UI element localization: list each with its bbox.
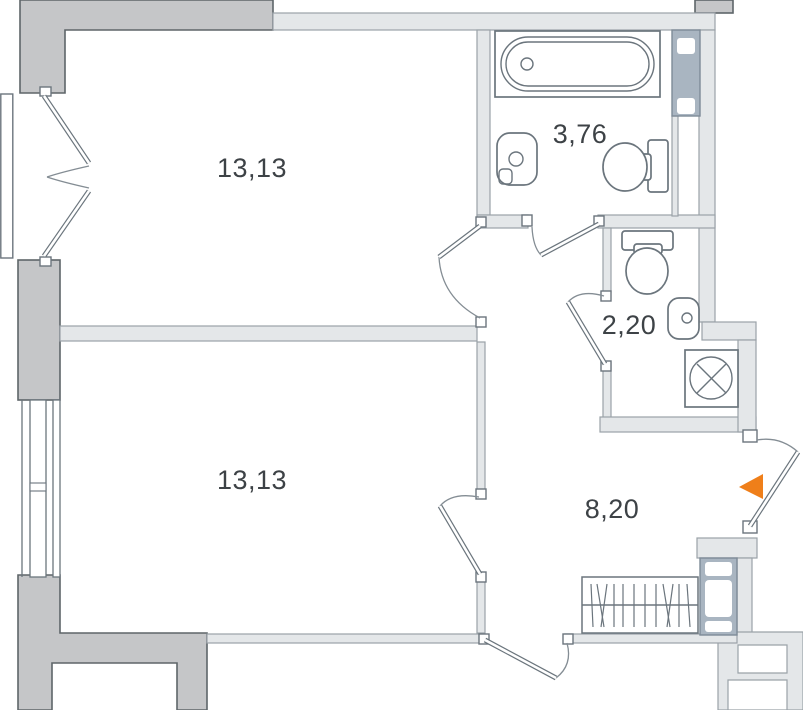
- wall-room1-bath: [477, 30, 490, 215]
- wc-toilet-icon: [622, 231, 673, 294]
- wall-right-upper: [699, 30, 715, 322]
- room1-door-icon: [439, 217, 486, 327]
- room2-area-label: 13,13: [217, 465, 287, 495]
- wc-sink-icon: [668, 298, 699, 339]
- room2-door-icon: [440, 489, 486, 582]
- wall-entry-lower: [697, 538, 757, 558]
- wall-right-lower: [737, 558, 752, 634]
- balcony-slab: [1, 94, 13, 258]
- wall-bath-bottom-right: [598, 215, 715, 228]
- wall-wc-bottom: [600, 417, 756, 432]
- bathroom-door-icon: [522, 215, 604, 255]
- wall-room2-hall-lower: [477, 575, 485, 633]
- room1-area-label: 13,13: [217, 153, 287, 183]
- wall-bath-inner-thin: [672, 116, 678, 216]
- entrance-marker-icon: [739, 474, 763, 499]
- wc-area-label: 2,20: [602, 310, 657, 340]
- wall-bottom-left-structure: [18, 575, 207, 710]
- wall-wc-left-top: [603, 228, 611, 292]
- bathroom-sink-icon: [497, 133, 537, 185]
- wall-top-left: [20, 0, 273, 93]
- wall-entry-upper: [738, 340, 756, 432]
- bathroom-area-label: 3,76: [553, 119, 608, 149]
- wall-top-band: [273, 13, 715, 30]
- wall-left-middle: [18, 260, 60, 400]
- vent-shaft-icon: [700, 558, 737, 635]
- wall-between-rooms: [60, 326, 477, 341]
- hall-bottom-door-icon: [479, 634, 573, 678]
- hallway-area-label: 8,20: [585, 494, 640, 524]
- floorplan-svg: 13,13 13,13 3,76 2,20 8,20: [0, 0, 803, 710]
- bathroom-toilet-icon: [603, 140, 668, 192]
- wardrobe-icon: [582, 577, 698, 633]
- window-icon: [22, 400, 60, 577]
- washing-machine-icon: [685, 350, 738, 407]
- area-labels: 13,13 13,13 3,76 2,20 8,20: [217, 119, 656, 524]
- wall-niche-top: [702, 322, 756, 340]
- wall-room2-hall-upper: [477, 342, 485, 497]
- wall-top-right-sliver: [695, 0, 733, 13]
- balcony-door-icon: [40, 87, 89, 266]
- vent-shaft-icon: [672, 30, 700, 116]
- bathtub-icon: [495, 31, 660, 97]
- wall-bottom-a: [207, 634, 481, 643]
- wall-bottom-right-block: [718, 632, 803, 710]
- floor-plan: 13,13 13,13 3,76 2,20 8,20: [0, 0, 803, 710]
